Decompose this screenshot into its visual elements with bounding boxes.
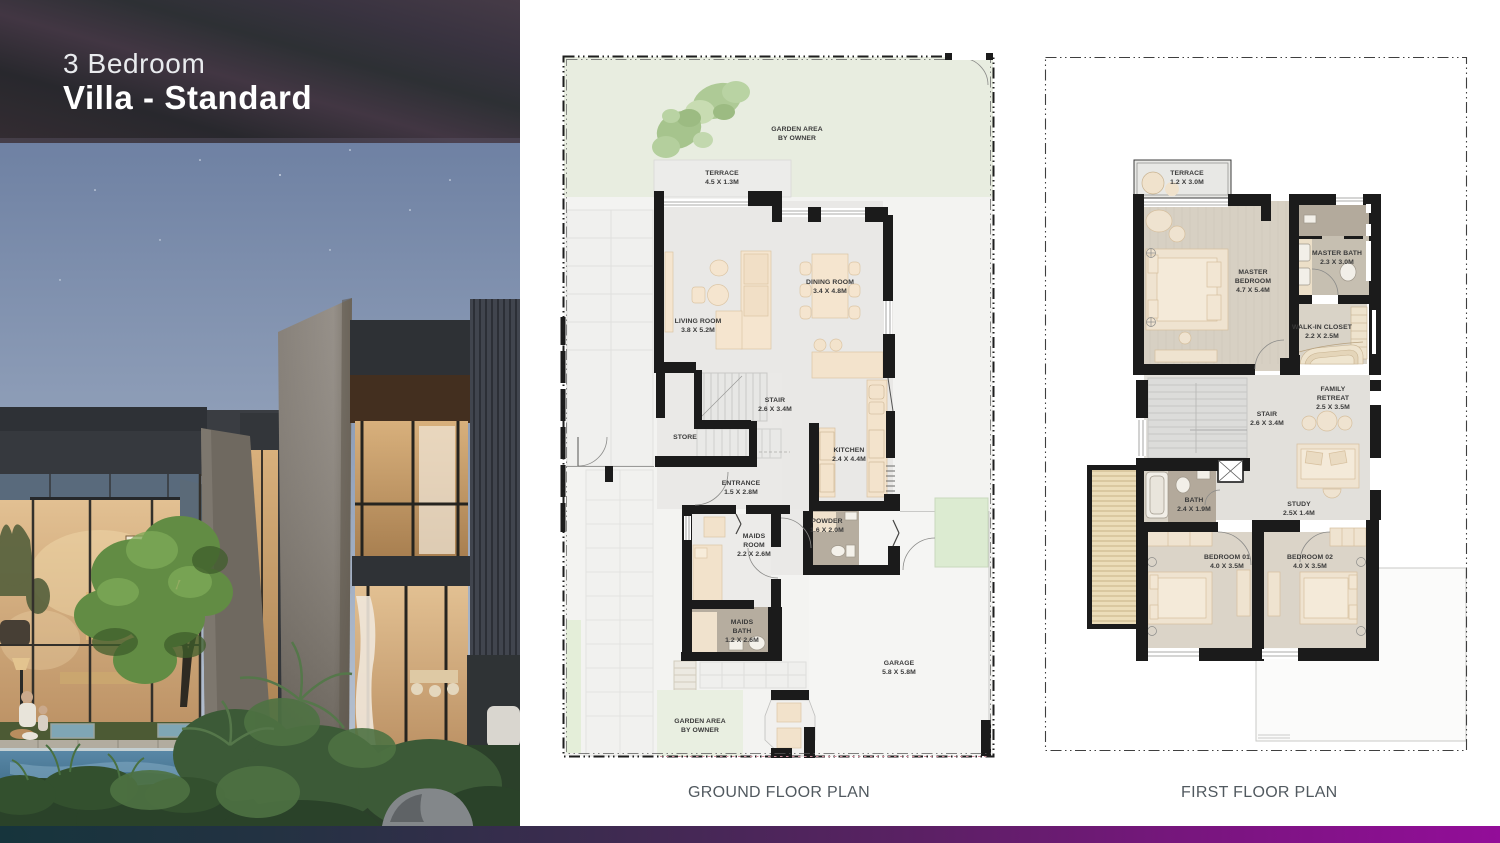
svg-text:2.2 X 2.5M: 2.2 X 2.5M: [1305, 333, 1339, 340]
svg-text:4.0 X 3.5M: 4.0 X 3.5M: [1293, 563, 1327, 570]
svg-text:FAMILY: FAMILY: [1321, 386, 1346, 393]
svg-text:ROOM: ROOM: [743, 542, 765, 549]
svg-text:BEDROOM 01: BEDROOM 01: [1204, 554, 1250, 561]
svg-text:4.0 X 3.5M: 4.0 X 3.5M: [1210, 563, 1244, 570]
svg-text:POWDER: POWDER: [811, 518, 842, 525]
svg-text:2.2 X 2.6M: 2.2 X 2.6M: [737, 551, 771, 558]
svg-text:MAIDS: MAIDS: [731, 619, 754, 626]
svg-text:2.5X 1.4M: 2.5X 1.4M: [1283, 510, 1315, 517]
svg-text:STORE: STORE: [673, 434, 697, 441]
svg-text:MASTER BATH: MASTER BATH: [1312, 250, 1362, 257]
svg-text:TERRACE: TERRACE: [705, 170, 739, 177]
svg-text:2.4 X 1.9M: 2.4 X 1.9M: [1177, 506, 1211, 513]
svg-text:2.4 X 4.4M: 2.4 X 4.4M: [832, 456, 866, 463]
svg-text:3.8 X 5.2M: 3.8 X 5.2M: [681, 327, 715, 334]
svg-text:1.2 X 3.0M: 1.2 X 3.0M: [1170, 179, 1204, 186]
svg-text:BATH: BATH: [733, 628, 752, 635]
svg-text:1.5 X 2.8M: 1.5 X 2.8M: [724, 489, 758, 496]
svg-text:GARDEN AREA: GARDEN AREA: [771, 126, 822, 133]
svg-text:2.6 X 3.4M: 2.6 X 3.4M: [1250, 420, 1284, 427]
svg-text:3 Bedroom: 3 Bedroom: [63, 48, 205, 79]
svg-text:LIVING ROOM: LIVING ROOM: [675, 318, 722, 325]
svg-text:STAIR: STAIR: [765, 397, 785, 404]
svg-text:KITCHEN: KITCHEN: [834, 447, 865, 454]
svg-text:BATH: BATH: [1185, 497, 1204, 504]
svg-text:5.8 X 5.8M: 5.8 X 5.8M: [882, 669, 916, 676]
svg-text:MASTER: MASTER: [1238, 269, 1267, 276]
svg-text:2.5 X 3.5M: 2.5 X 3.5M: [1316, 404, 1350, 411]
svg-text:TERRACE: TERRACE: [1170, 170, 1204, 177]
svg-text:GARDEN AREA: GARDEN AREA: [674, 718, 725, 725]
svg-text:Villa - Standard: Villa - Standard: [63, 79, 312, 116]
svg-text:STUDY: STUDY: [1287, 501, 1311, 508]
svg-text:MAIDS: MAIDS: [743, 533, 766, 540]
svg-text:1.2 X 2.6M: 1.2 X 2.6M: [725, 637, 759, 644]
svg-text:BEDROOM 02: BEDROOM 02: [1287, 554, 1333, 561]
svg-text:4.5 X 1.3M: 4.5 X 1.3M: [705, 179, 739, 186]
svg-text:4.7 X 5.4M: 4.7 X 5.4M: [1236, 287, 1270, 294]
svg-text:3.4 X 4.8M: 3.4 X 4.8M: [813, 288, 847, 295]
svg-text:GARAGE: GARAGE: [884, 660, 915, 667]
svg-text:WALK-IN CLOSET: WALK-IN CLOSET: [1292, 324, 1353, 331]
svg-text:BY OWNER: BY OWNER: [681, 727, 719, 734]
svg-text:DINING ROOM: DINING ROOM: [806, 279, 854, 286]
svg-text:BY OWNER: BY OWNER: [778, 135, 816, 142]
svg-text:1.6 X 2.0M: 1.6 X 2.0M: [810, 527, 844, 534]
svg-text:ENTRANCE: ENTRANCE: [722, 480, 761, 487]
svg-text:RETREAT: RETREAT: [1317, 395, 1350, 402]
svg-text:STAIR: STAIR: [1257, 411, 1277, 418]
svg-text:2.3 X 3.0M: 2.3 X 3.0M: [1320, 259, 1354, 266]
svg-text:2.6 X 3.4M: 2.6 X 3.4M: [758, 406, 792, 413]
svg-text:BEDROOM: BEDROOM: [1235, 278, 1271, 285]
